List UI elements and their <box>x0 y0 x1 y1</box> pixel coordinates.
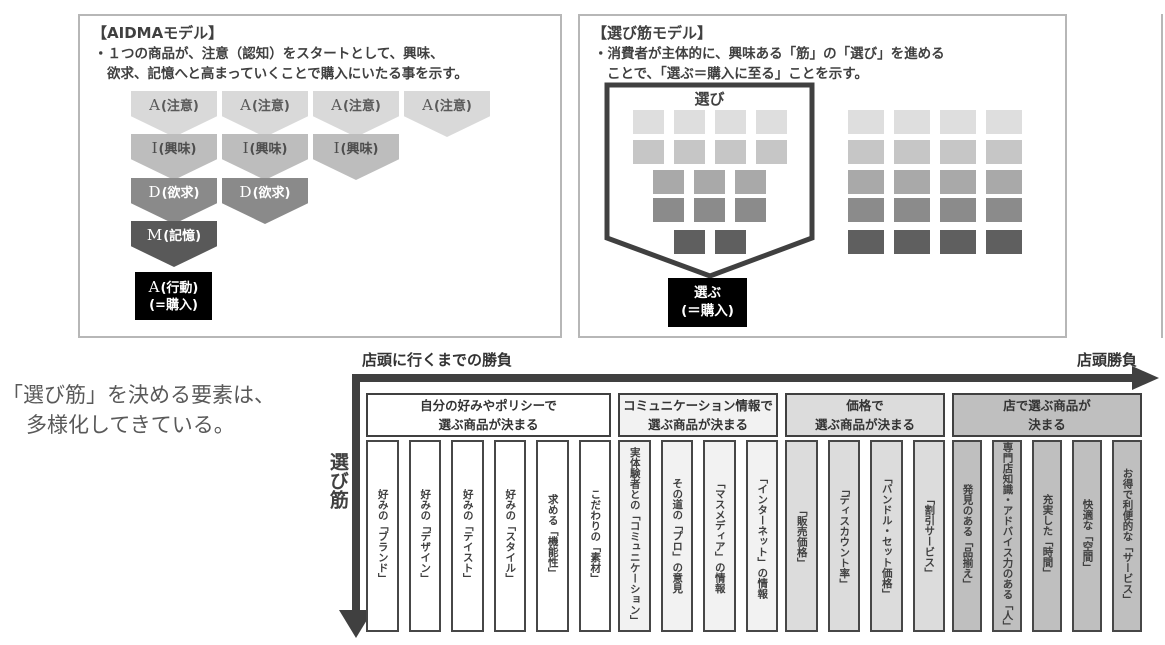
chevron-label: (注意) <box>343 99 381 114</box>
chevron-I: I(興味) <box>313 134 399 180</box>
chevron-label: (注意) <box>252 99 290 114</box>
chevron-letter: D <box>240 183 252 201</box>
aidma-panel-title: 【AIDMAモデル】 <box>80 16 560 43</box>
factor-column: 「マスメディア」の情報 <box>703 440 736 632</box>
group-columns: 「販売価格」「ディスカウント率」「バンドル・セット価格」「割引サービス」 <box>785 440 945 632</box>
chevron-letter: M <box>147 226 162 244</box>
erabisuji-model-panel: 【選び筋モデル】 ・消費者が主体的に、興味ある「筋」の「選び」を進める ことで、… <box>578 14 1067 338</box>
group-header-line1: コミュニケーション情報で <box>620 396 776 415</box>
factor-column: 好みの「テイスト」 <box>451 440 484 632</box>
caption-line2: 多様化してきている。 <box>2 411 275 441</box>
group-header: 店で選ぶ商品が決まる <box>952 393 1142 437</box>
grid-square-row <box>848 170 1022 194</box>
factor-column: その道の「プロ」の意見 <box>661 440 694 632</box>
aidma-action-line1: A(行動) <box>135 278 212 298</box>
grid-square-row <box>848 140 1022 164</box>
horizontal-arrow <box>352 374 1134 382</box>
factor-groups: 自分の好みやポリシーで選ぶ商品が決まる好みの「ブランド」好みの「デザイン」好みの… <box>366 393 1142 632</box>
chevron-label: (欲求) <box>162 186 200 201</box>
caption-line1: 「選び筋」を決める要素は、 <box>2 381 275 411</box>
factor-column: 充実した「時間」 <box>1032 440 1062 632</box>
factor-column: 「割引サービス」 <box>913 440 946 632</box>
grid-square <box>940 140 976 164</box>
chevron-label: (興味) <box>250 142 288 157</box>
group-header: 自分の好みやポリシーで選ぶ商品が決まる <box>366 393 611 437</box>
grid-square <box>894 110 930 134</box>
factor-column: 好みの「スタイル」 <box>494 440 527 632</box>
grid-square <box>894 230 930 254</box>
chevron-row-D: D(欲求)D(欲求) <box>131 178 308 224</box>
factor-column: 「バンドル・セット価格」 <box>870 440 903 632</box>
grid-square <box>848 170 884 194</box>
chevron-A: A(注意) <box>222 91 308 137</box>
grid-square <box>940 198 976 222</box>
factor-group-2: コミュニケーション情報で選ぶ商品が決まる実体験者との「コミュニケーション」その道… <box>618 393 778 632</box>
grid-square <box>894 198 930 222</box>
funnel-square <box>756 140 787 164</box>
group-header-line2: 選ぶ商品が決まる <box>368 415 609 434</box>
chevron-label: (欲求) <box>253 186 291 201</box>
funnel-square <box>633 140 664 164</box>
chevron-A: A(注意) <box>313 91 399 137</box>
vertical-arrow <box>352 374 360 612</box>
chevron-M: M(記憶) <box>131 221 217 267</box>
group-header-line2: 選ぶ商品が決まる <box>787 415 943 434</box>
chevron-A: A(注意) <box>404 91 490 137</box>
chevron-label: (注意) <box>161 99 199 114</box>
chevron-I: I(興味) <box>131 134 217 180</box>
funnel-label: 選び <box>607 88 812 109</box>
chevron-letter: I <box>152 139 158 157</box>
factor-column: こだわりの「素材」 <box>579 440 612 632</box>
funnel-square <box>653 198 684 222</box>
chevron-D: D(欲求) <box>131 178 217 224</box>
factor-column: 好みの「ブランド」 <box>366 440 399 632</box>
funnel-square <box>735 170 766 194</box>
grid-square <box>894 170 930 194</box>
factor-column: 実体験者との「コミュニケーション」 <box>618 440 651 632</box>
chevron-row-I: I(興味)I(興味)I(興味) <box>131 134 399 180</box>
factor-column: 「販売価格」 <box>785 440 818 632</box>
factor-column: 発見のある「品揃え」 <box>952 440 982 632</box>
grid-square <box>848 140 884 164</box>
grid-square <box>986 170 1022 194</box>
group-header: コミュニケーション情報で選ぶ商品が決まる <box>618 393 778 437</box>
chevron-letter: A <box>149 96 160 114</box>
funnel-square <box>633 110 664 134</box>
chevron-label: (興味) <box>341 142 379 157</box>
factor-column: 専門店知識・アドバイス力のある「人」 <box>992 440 1022 632</box>
aidma-desc-line2: 欲求、記憶へと高まっていくことで購入にいたる事を示す。 <box>94 65 550 85</box>
aidma-action-line2: (=購入) <box>135 298 212 315</box>
aidma-action-box: A(行動) (=購入) <box>135 272 212 320</box>
group-header: 価格で選ぶ商品が決まる <box>785 393 945 437</box>
funnel-square <box>715 230 746 254</box>
caption: 「選び筋」を決める要素は、 多様化してきている。 <box>2 381 275 441</box>
cropped-panel-edge <box>1161 14 1163 338</box>
chevron-letter: D <box>149 183 161 201</box>
grid-square <box>940 230 976 254</box>
chevron-A: A(注意) <box>131 91 217 137</box>
funnel-square <box>674 110 705 134</box>
funnel-square-row <box>633 110 787 134</box>
funnel-square-row <box>653 170 766 194</box>
factor-column: お得で利便的な「サービス」 <box>1112 440 1142 632</box>
group-columns: 好みの「ブランド」好みの「デザイン」好みの「テイスト」好みの「スタイル」求める「… <box>366 440 611 632</box>
chevron-letter: A <box>331 96 342 114</box>
grid-square <box>894 140 930 164</box>
pre-store-battle-label: 店頭に行くまでの勝負 <box>362 349 512 370</box>
funnel-square <box>674 230 705 254</box>
group-header-line1: 店で選ぶ商品が <box>954 396 1140 415</box>
funnel-square <box>674 140 705 164</box>
factor-group-4: 店で選ぶ商品が決まる発見のある「品揃え」専門店知識・アドバイス力のある「人」充実… <box>952 393 1142 632</box>
factor-column: 「インターネット」の情報 <box>746 440 779 632</box>
chevron-letter: A <box>240 96 251 114</box>
grid-square <box>940 110 976 134</box>
grid-square <box>986 230 1022 254</box>
select-box-line1: 選ぶ <box>668 285 747 303</box>
factor-column: 快適な「空間」 <box>1072 440 1102 632</box>
horizontal-arrow-head-icon <box>1132 366 1159 390</box>
factor-column: 求める「機能性」 <box>536 440 569 632</box>
funnel-square <box>694 170 725 194</box>
funnel-square <box>653 170 684 194</box>
group-header-line1: 価格で <box>787 396 943 415</box>
group-columns: 実体験者との「コミュニケーション」その道の「プロ」の意見「マスメディア」の情報「… <box>618 440 778 632</box>
chevron-letter: A <box>422 96 433 114</box>
funnel-square <box>715 140 746 164</box>
grid-square <box>848 230 884 254</box>
funnel-square-row <box>653 198 766 222</box>
funnel-square <box>694 198 725 222</box>
group-header-line2: 決まる <box>954 415 1140 434</box>
aidma-desc-line1: ・１つの商品が、注意（認知）をスタートとして、興味、 <box>94 45 550 65</box>
chevron-row-A: A(注意)A(注意)A(注意)A(注意) <box>131 91 490 137</box>
factor-column: 「ディスカウント率」 <box>828 440 861 632</box>
grid-square-row <box>848 198 1022 222</box>
grid-square <box>848 198 884 222</box>
chevron-letter: I <box>243 139 249 157</box>
grid-square-row <box>848 230 1022 254</box>
grid-square <box>986 198 1022 222</box>
chevron-label: (注意) <box>434 99 472 114</box>
grid-square <box>986 110 1022 134</box>
grid-square-row <box>848 110 1022 134</box>
grid-square <box>848 110 884 134</box>
group-columns: 発見のある「品揃え」専門店知識・アドバイス力のある「人」充実した「時間」快適な「… <box>952 440 1142 632</box>
chevron-label: (記憶) <box>163 229 201 244</box>
funnel-square <box>735 198 766 222</box>
chevron-letter: I <box>334 139 340 157</box>
chevron-label: (興味) <box>159 142 197 157</box>
funnel-square <box>756 110 787 134</box>
select-box-line2: (＝購入) <box>668 303 747 321</box>
select-purchase-box: 選ぶ (＝購入) <box>668 278 747 327</box>
chevron-row-M: M(記憶) <box>131 221 217 267</box>
slide-canvas: 【AIDMAモデル】 ・１つの商品が、注意（認知）をスタートとして、興味、 欲求… <box>0 0 1165 645</box>
group-header-line2: 選ぶ商品が決まる <box>620 415 776 434</box>
grid-square <box>986 140 1022 164</box>
chevron-I: I(興味) <box>222 134 308 180</box>
funnel-square-row <box>674 230 746 254</box>
funnel-square <box>715 110 746 134</box>
aidma-panel-description: ・１つの商品が、注意（認知）をスタートとして、興味、 欲求、記憶へと高まっていく… <box>80 43 560 84</box>
grid-square <box>940 170 976 194</box>
factor-group-3: 価格で選ぶ商品が決まる「販売価格」「ディスカウント率」「バンドル・セット価格」「… <box>785 393 945 632</box>
factor-group-1: 自分の好みやポリシーで選ぶ商品が決まる好みの「ブランド」好みの「デザイン」好みの… <box>366 393 611 632</box>
chevron-D: D(欲求) <box>222 178 308 224</box>
aidma-model-panel: 【AIDMAモデル】 ・１つの商品が、注意（認知）をスタートとして、興味、 欲求… <box>78 14 562 338</box>
erabisuji-axis-label: 選び筋 <box>326 452 348 509</box>
factor-column: 好みの「デザイン」 <box>409 440 442 632</box>
funnel-square-row <box>633 140 787 164</box>
group-header-line1: 自分の好みやポリシーで <box>368 396 609 415</box>
in-store-battle-label: 店頭勝負 <box>1077 349 1137 370</box>
